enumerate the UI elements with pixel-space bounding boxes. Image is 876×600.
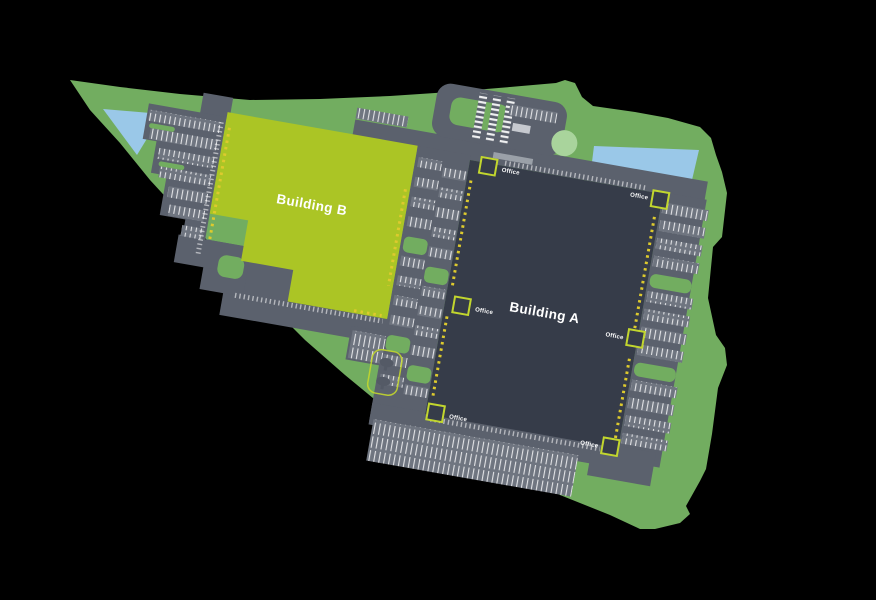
office-square[interactable] <box>601 437 620 456</box>
site-plan: Office Office Office Office Office Offic… <box>0 0 876 600</box>
office-square[interactable] <box>626 329 645 348</box>
office-square[interactable] <box>452 296 471 315</box>
office-square[interactable] <box>479 157 498 176</box>
office-square[interactable] <box>651 190 670 209</box>
office-square[interactable] <box>426 404 445 423</box>
site-plan-canvas: Office Office Office Office Office Offic… <box>0 0 876 600</box>
